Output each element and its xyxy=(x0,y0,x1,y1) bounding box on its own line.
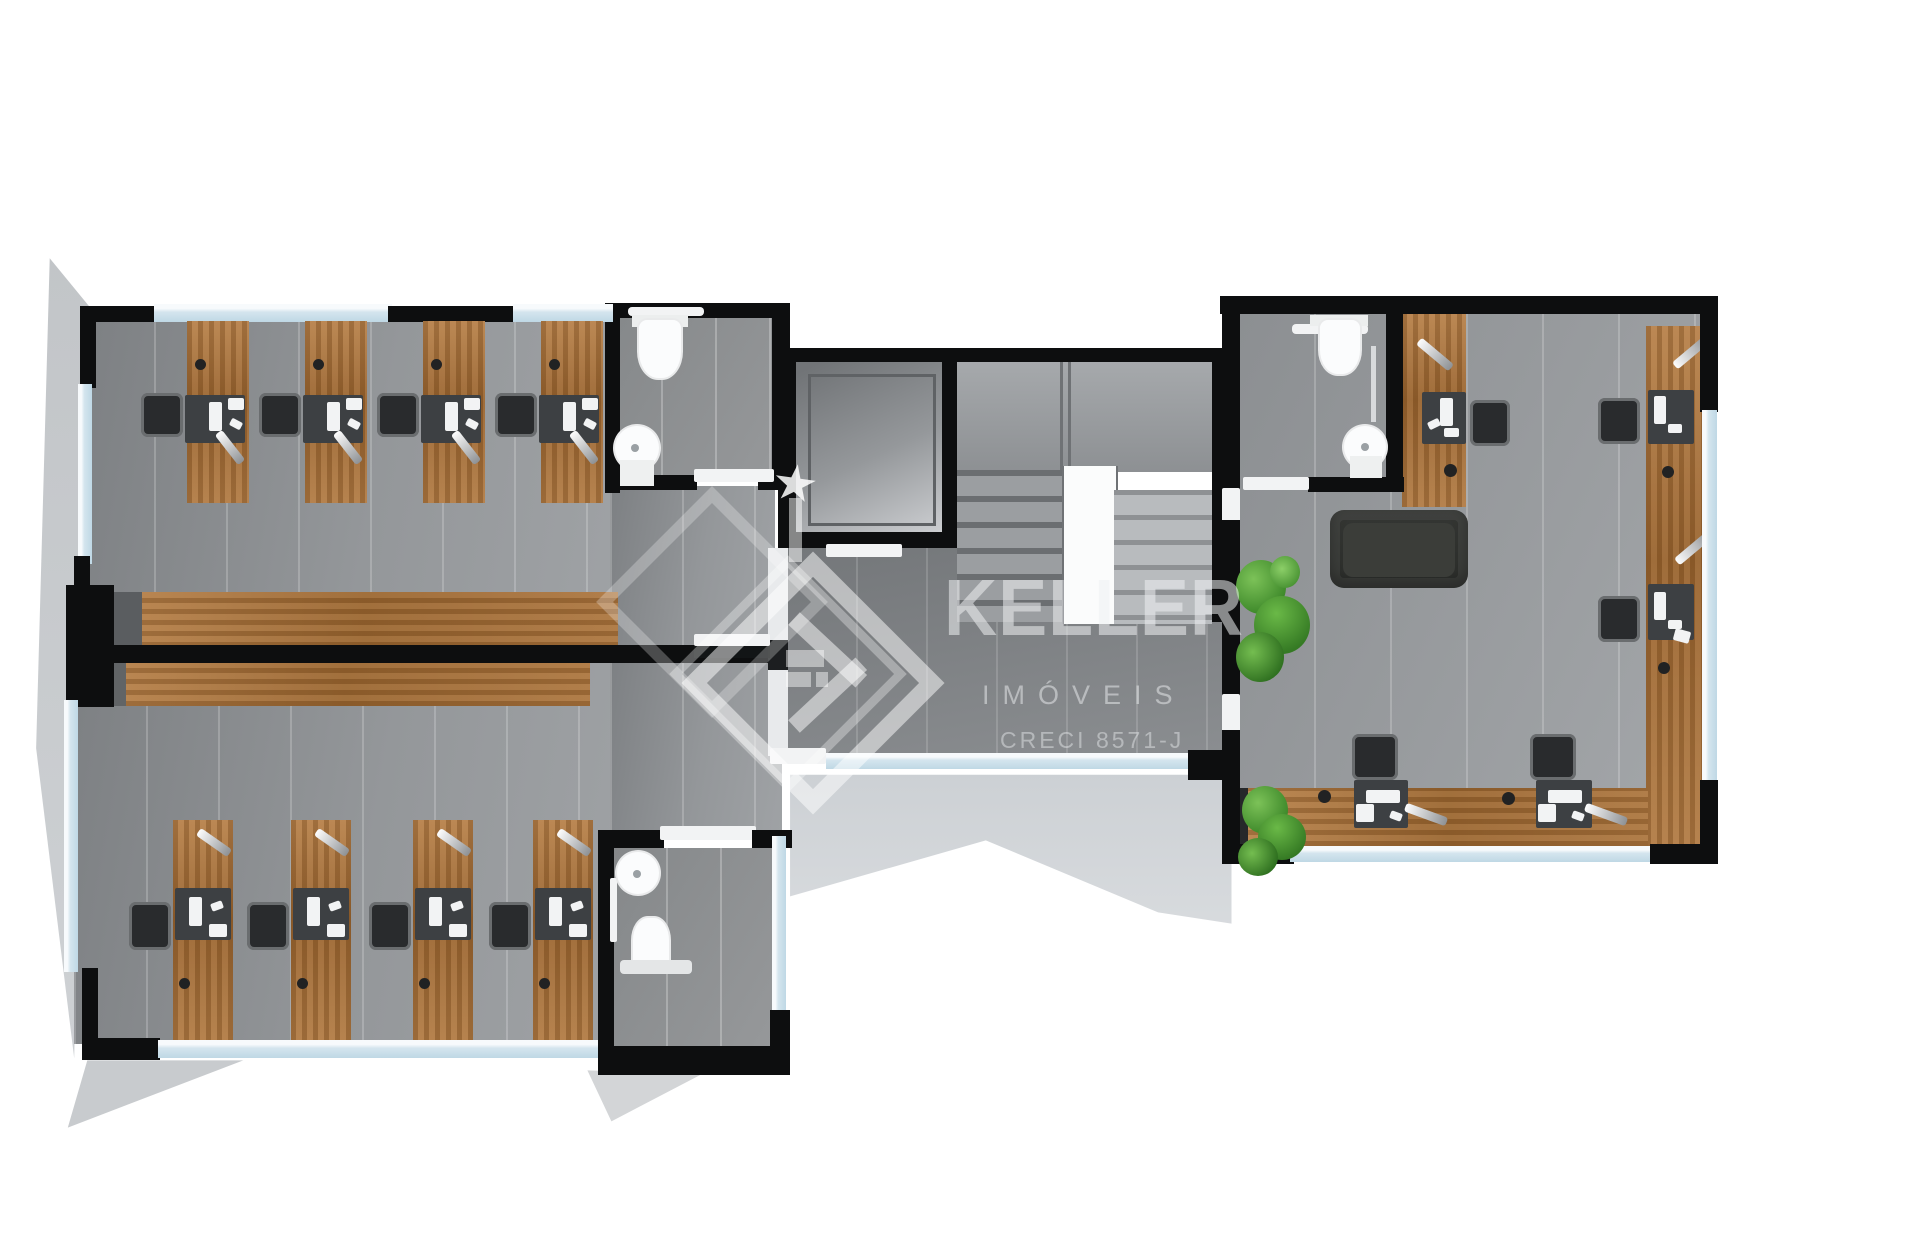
office-chair xyxy=(495,393,537,437)
watermark-license-text: CRECI 8571-J xyxy=(1000,727,1184,754)
right-wing-wall-left-3 xyxy=(1222,730,1240,848)
ground-shadow-bottom-left xyxy=(60,1052,255,1136)
outer-wall-left-1 xyxy=(80,306,96,388)
sofa-seat xyxy=(1343,523,1455,577)
office-chair xyxy=(489,902,531,950)
paper xyxy=(1538,804,1556,822)
office-chair xyxy=(1530,734,1576,780)
right-wing-door-jamb xyxy=(1222,488,1240,522)
right-wing-wall-right-1 xyxy=(1700,296,1718,412)
desk-plant xyxy=(549,359,560,370)
office-chair xyxy=(1598,596,1640,642)
right-wing-wall-top xyxy=(1220,296,1718,314)
bathroom-right-wall-right xyxy=(1386,313,1403,479)
desk-plant xyxy=(1662,466,1674,478)
desk-plant xyxy=(195,359,206,370)
office-chair xyxy=(377,393,419,437)
window-bottom xyxy=(158,1040,604,1058)
monitor xyxy=(563,402,576,431)
paper xyxy=(228,398,244,410)
stair-railing-line xyxy=(1068,362,1071,470)
office-chair xyxy=(129,902,171,950)
washbasin-cabinet xyxy=(1350,456,1382,478)
bathroom-bottom-glass-right xyxy=(772,836,786,1014)
bathroom-bottom-door-leaf xyxy=(660,826,756,840)
monitor xyxy=(327,402,340,431)
hall-window-bottom xyxy=(826,753,1190,769)
window-left-1 xyxy=(78,384,92,564)
outer-wall-left-2 xyxy=(74,556,90,602)
monitor xyxy=(209,402,222,431)
office-chair xyxy=(1470,400,1510,446)
desk-plant xyxy=(1318,790,1331,803)
long-bench-bottom xyxy=(100,662,590,706)
monitor xyxy=(1654,396,1666,424)
desk-plant xyxy=(431,359,442,370)
paper xyxy=(1356,804,1374,822)
watermark-mark-rect xyxy=(786,650,824,667)
monitor xyxy=(1548,790,1582,803)
bathroom-bottom-wall-bottom xyxy=(598,1046,790,1075)
paper xyxy=(346,398,362,410)
monitor xyxy=(1440,398,1453,426)
stairwell-landing xyxy=(957,362,1212,472)
washbasin-cabinet xyxy=(620,460,654,486)
paper xyxy=(449,924,467,937)
outer-wall-top-2 xyxy=(388,306,517,322)
elevator-door-sill xyxy=(826,544,902,557)
ground-shadow-below-wc xyxy=(585,1068,705,1126)
bathroom-bottom-wall-left xyxy=(598,830,614,1075)
elevator-cab-frame xyxy=(808,374,936,526)
outer-wall-bottom-corner xyxy=(82,1038,160,1060)
window-top-1 xyxy=(154,304,392,322)
faucet xyxy=(1361,443,1369,451)
keyboard xyxy=(1444,428,1459,437)
watermark-subtitle-text: IMÓVEIS xyxy=(982,680,1186,711)
watermark-mark-rect xyxy=(816,672,828,687)
monitor xyxy=(1654,592,1666,620)
bathroom-top-door-leaf xyxy=(694,469,774,482)
toilet xyxy=(1318,318,1362,376)
toilet-base xyxy=(620,960,692,974)
right-wing-window-bottom xyxy=(1290,846,1654,862)
paper xyxy=(327,924,345,937)
watermark-apex-connector xyxy=(789,498,802,562)
desk-plant xyxy=(1658,662,1670,674)
toilet xyxy=(637,318,683,380)
faucet xyxy=(633,870,641,878)
monitor xyxy=(307,897,320,926)
window-left-2 xyxy=(64,700,78,972)
keyboard xyxy=(1668,620,1682,629)
right-office-floor xyxy=(1238,313,1704,847)
paper xyxy=(582,398,598,410)
monitor xyxy=(445,402,458,431)
hall-wall-bottom-corner xyxy=(1188,750,1232,780)
desk-plant xyxy=(539,978,550,989)
monitor xyxy=(1366,790,1400,803)
office-chair xyxy=(1598,398,1640,444)
long-bench-top xyxy=(112,592,618,647)
bathroom-top-wall-right xyxy=(772,303,790,479)
paper xyxy=(464,398,480,410)
office-chair xyxy=(259,393,301,437)
plant-foliage xyxy=(1238,838,1278,876)
towel-rail xyxy=(610,878,617,942)
ground-shadow-bottom-center xyxy=(786,770,1236,930)
monitor xyxy=(189,897,202,926)
bathroom-top-wall-left xyxy=(605,303,620,493)
floor-plan-rendering: KELLER IMÓVEIS CRECI 8571-J xyxy=(0,0,1920,1249)
watermark-mark-rect xyxy=(786,672,811,687)
stairwell-wall-top xyxy=(955,348,1217,362)
shower-glass xyxy=(1371,346,1376,422)
left-wall-mid-block xyxy=(66,585,114,707)
office-chair xyxy=(1352,734,1398,780)
office-chair xyxy=(369,902,411,950)
office-chair xyxy=(247,902,289,950)
desk-plant xyxy=(1502,792,1515,805)
paper xyxy=(569,924,587,937)
bathroom-right-wall-bottom xyxy=(1308,477,1404,492)
long-bench-top-endcap xyxy=(112,592,142,647)
monitor xyxy=(429,897,442,926)
desk-plant xyxy=(419,978,430,989)
bathroom-right-door-leaf xyxy=(1243,477,1309,490)
desk-plant xyxy=(297,978,308,989)
desk-plant xyxy=(313,359,324,370)
keyboard xyxy=(1668,424,1682,433)
monitor xyxy=(549,897,562,926)
window-top-2 xyxy=(513,304,613,322)
stair-railing-line xyxy=(1060,362,1063,470)
office-chair xyxy=(141,393,183,437)
right-wing-window-right xyxy=(1702,410,1717,782)
faucet xyxy=(631,444,639,452)
right-wing-wall-bottom-2 xyxy=(1650,844,1718,864)
paper xyxy=(209,924,227,937)
elevator-wall-top xyxy=(778,348,960,362)
desk-plant xyxy=(179,978,190,989)
watermark-brand-text: KELLER xyxy=(944,572,1244,644)
plant-foliage xyxy=(1270,556,1300,588)
desk-plant xyxy=(1444,464,1457,477)
right-wing-wall-left-1 xyxy=(1222,314,1240,490)
right-wing-door-jamb xyxy=(1222,694,1240,732)
